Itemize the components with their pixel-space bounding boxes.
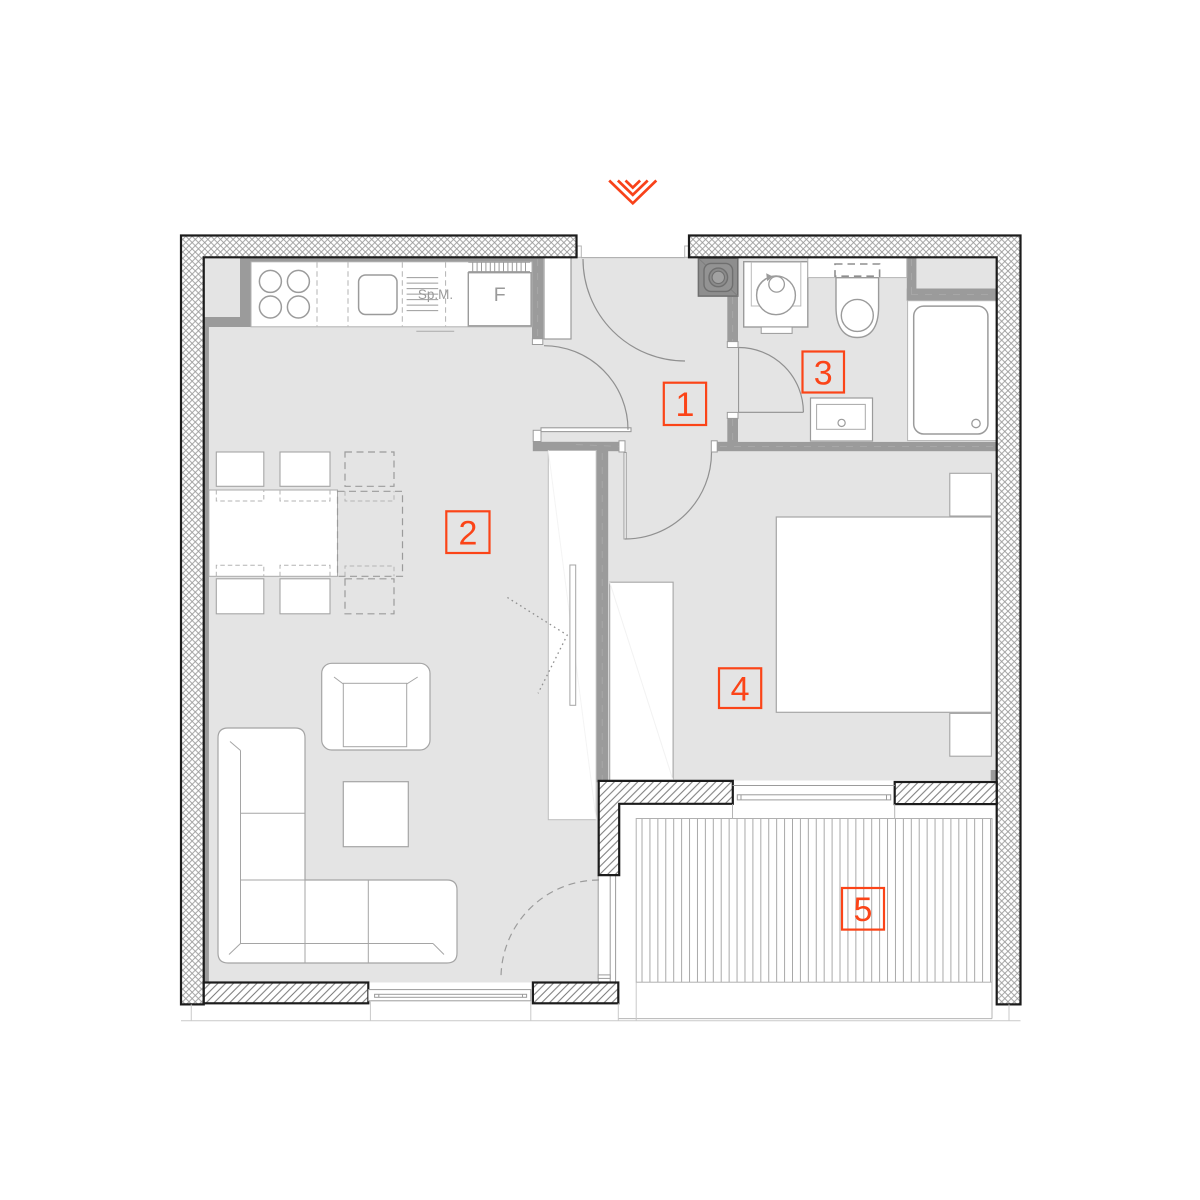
svg-text:F: F — [494, 284, 506, 306]
svg-text:5: 5 — [854, 891, 873, 929]
svg-text:2: 2 — [458, 514, 477, 552]
svg-text:3: 3 — [814, 354, 833, 392]
svg-text:1: 1 — [675, 386, 694, 424]
svg-text:4: 4 — [731, 670, 750, 708]
svg-text:Sp.M.: Sp.M. — [418, 287, 453, 302]
